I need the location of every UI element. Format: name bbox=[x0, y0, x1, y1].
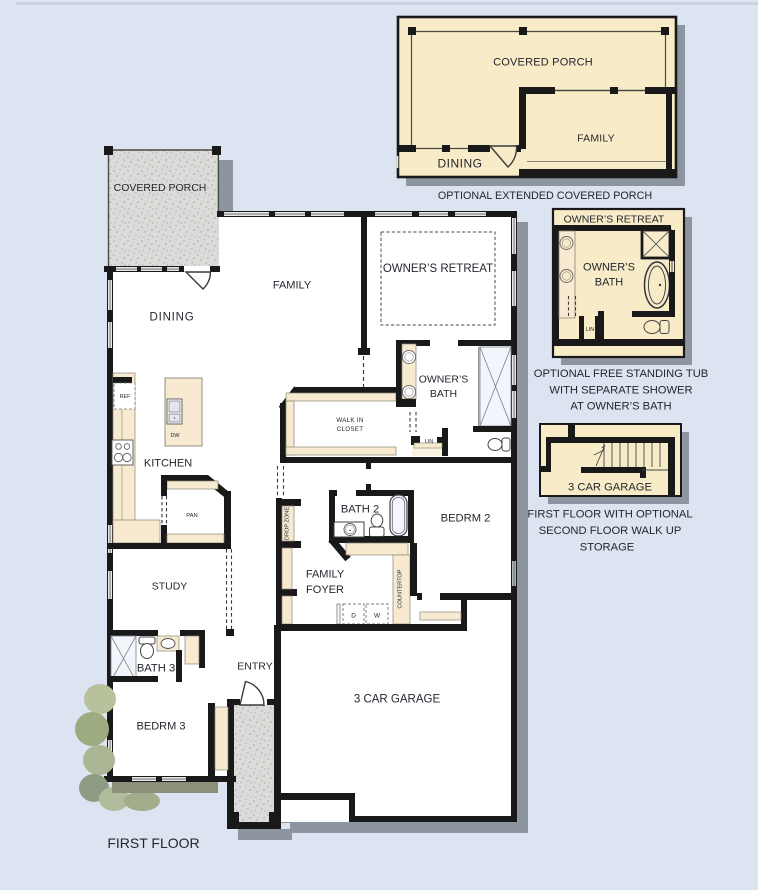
svg-text:COVERED PORCH: COVERED PORCH bbox=[493, 57, 593, 69]
svg-text:PAN: PAN bbox=[186, 513, 198, 519]
svg-text:FAMILY: FAMILY bbox=[273, 280, 312, 292]
svg-text:STORAGE: STORAGE bbox=[580, 542, 635, 554]
svg-text:OWNER’S RETREAT: OWNER’S RETREAT bbox=[564, 214, 665, 226]
svg-text:OPTIONAL FREE STANDING TUB: OPTIONAL FREE STANDING TUB bbox=[534, 368, 708, 380]
svg-text:BEDRM 3: BEDRM 3 bbox=[137, 721, 186, 733]
svg-text:DINING: DINING bbox=[149, 312, 194, 324]
svg-text:CLOSET: CLOSET bbox=[337, 426, 364, 433]
svg-text:OWNER’S: OWNER’S bbox=[583, 262, 635, 274]
svg-text:DINING: DINING bbox=[438, 157, 483, 171]
svg-text:D: D bbox=[351, 613, 356, 620]
svg-text:3 CAR GARAGE: 3 CAR GARAGE bbox=[354, 694, 441, 706]
svg-text:WITH SEPARATE SHOWER: WITH SEPARATE SHOWER bbox=[549, 385, 692, 397]
svg-text:OPTIONAL EXTENDED COVERED PORC: OPTIONAL EXTENDED COVERED PORCH bbox=[438, 190, 652, 202]
svg-text:BATH: BATH bbox=[430, 388, 457, 400]
svg-text:BATH 2: BATH 2 bbox=[341, 504, 379, 516]
svg-text:DW: DW bbox=[171, 433, 181, 439]
svg-text:KITCHEN: KITCHEN bbox=[144, 458, 192, 470]
svg-text:COVERED PORCH: COVERED PORCH bbox=[114, 182, 207, 194]
svg-text:FIRST FLOOR WITH OPTIONAL: FIRST FLOOR WITH OPTIONAL bbox=[527, 509, 692, 521]
svg-text:LIN: LIN bbox=[586, 327, 594, 333]
svg-text:BEDRM 2: BEDRM 2 bbox=[441, 513, 491, 525]
svg-text:BATH 3: BATH 3 bbox=[137, 663, 175, 675]
svg-text:3 CAR GARAGE: 3 CAR GARAGE bbox=[568, 482, 652, 494]
svg-text:WALK IN: WALK IN bbox=[336, 417, 363, 424]
svg-text:STUDY: STUDY bbox=[152, 581, 188, 593]
svg-text:BATH: BATH bbox=[595, 277, 624, 289]
svg-text:REF: REF bbox=[120, 394, 131, 400]
svg-text:FAMILY: FAMILY bbox=[306, 569, 345, 581]
svg-text:COUNTERTOP: COUNTERTOP bbox=[398, 569, 404, 608]
svg-text:FIRST FLOOR: FIRST FLOOR bbox=[107, 835, 199, 851]
svg-text:OWNER’S RETREAT: OWNER’S RETREAT bbox=[383, 263, 493, 275]
svg-text:LIN: LIN bbox=[425, 439, 433, 445]
svg-text:ENTRY: ENTRY bbox=[237, 661, 272, 673]
svg-text:FAMILY: FAMILY bbox=[577, 133, 615, 145]
svg-text:FOYER: FOYER bbox=[306, 584, 344, 596]
svg-text:DROP ZONE: DROP ZONE bbox=[285, 507, 291, 540]
svg-text:OWNER’S: OWNER’S bbox=[419, 374, 469, 386]
svg-text:AT OWNER’S BATH: AT OWNER’S BATH bbox=[570, 401, 671, 413]
svg-text:SECOND FLOOR WALK UP: SECOND FLOOR WALK UP bbox=[539, 525, 682, 537]
svg-text:W: W bbox=[374, 613, 381, 620]
